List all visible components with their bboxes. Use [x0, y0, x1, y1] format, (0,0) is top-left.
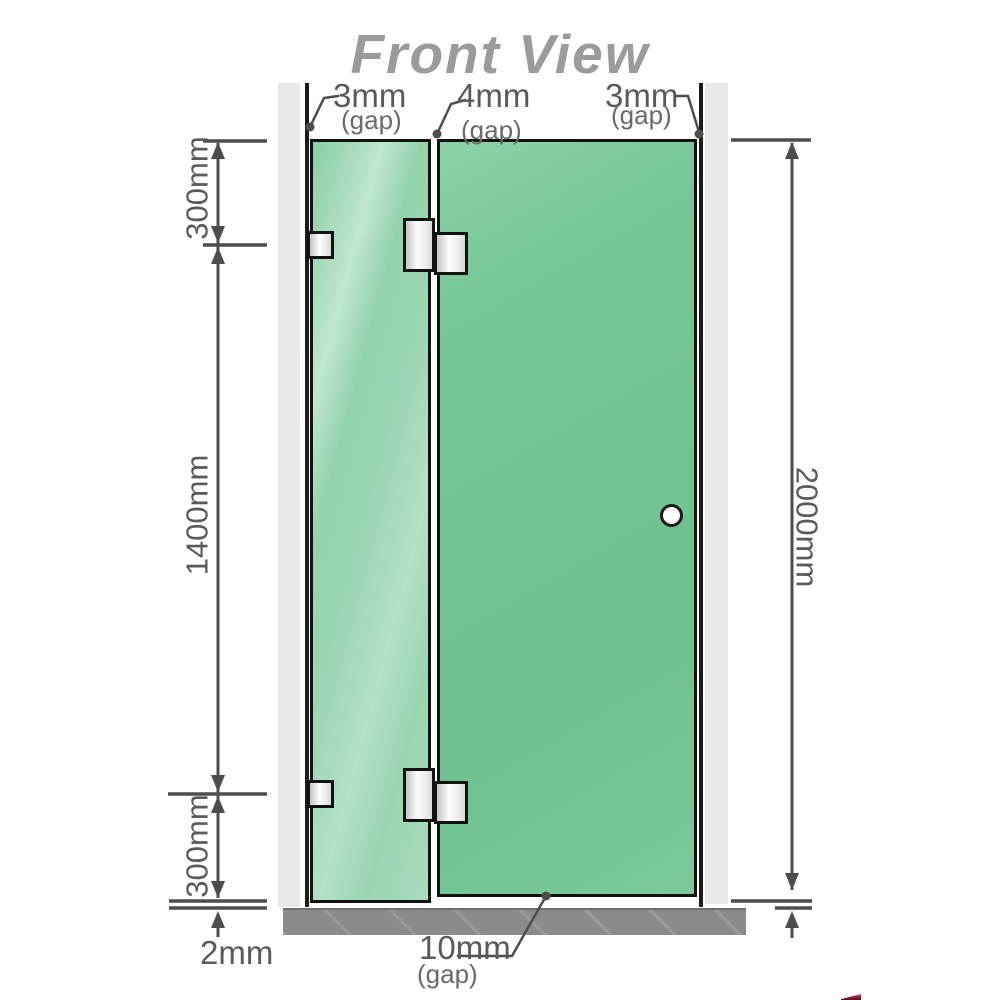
gap-label-bottom-unit: (gap)	[417, 961, 478, 987]
dimension-1400mm-middle: 1400mm	[182, 455, 213, 576]
door-glass-panel	[437, 139, 697, 897]
gap-label-left-unit: (gap)	[341, 107, 402, 133]
door-hinge-bottom-right-plate	[434, 781, 468, 824]
dimension-2mm-floor-gap: 2mm	[200, 936, 273, 969]
door-hinge-bottom-left-plate	[403, 768, 435, 822]
dimension-2000mm-total: 2000mm	[792, 467, 823, 588]
left-wall	[278, 83, 300, 907]
dimension-300mm-top: 300mm	[182, 136, 213, 239]
shower-screen-front-view-diagram: Front View	[0, 0, 1000, 1000]
right-wall-edge-line	[699, 83, 703, 907]
door-hinge-top-right-plate	[434, 232, 468, 275]
floor-base	[283, 908, 746, 935]
dimension-300mm-bottom: 300mm	[182, 794, 213, 897]
wall-bracket-top	[307, 231, 334, 259]
wall-bracket-bottom	[307, 780, 334, 808]
right-wall	[705, 83, 728, 904]
door-knob	[660, 504, 683, 527]
gap-label-middle-unit: (gap)	[461, 117, 522, 143]
door-hinge-top-left-plate	[403, 218, 435, 272]
gap-label-right-unit: (gap)	[611, 102, 672, 128]
corner-red-mark	[841, 994, 861, 1000]
gap-label-middle-value: 4mm	[457, 79, 530, 112]
